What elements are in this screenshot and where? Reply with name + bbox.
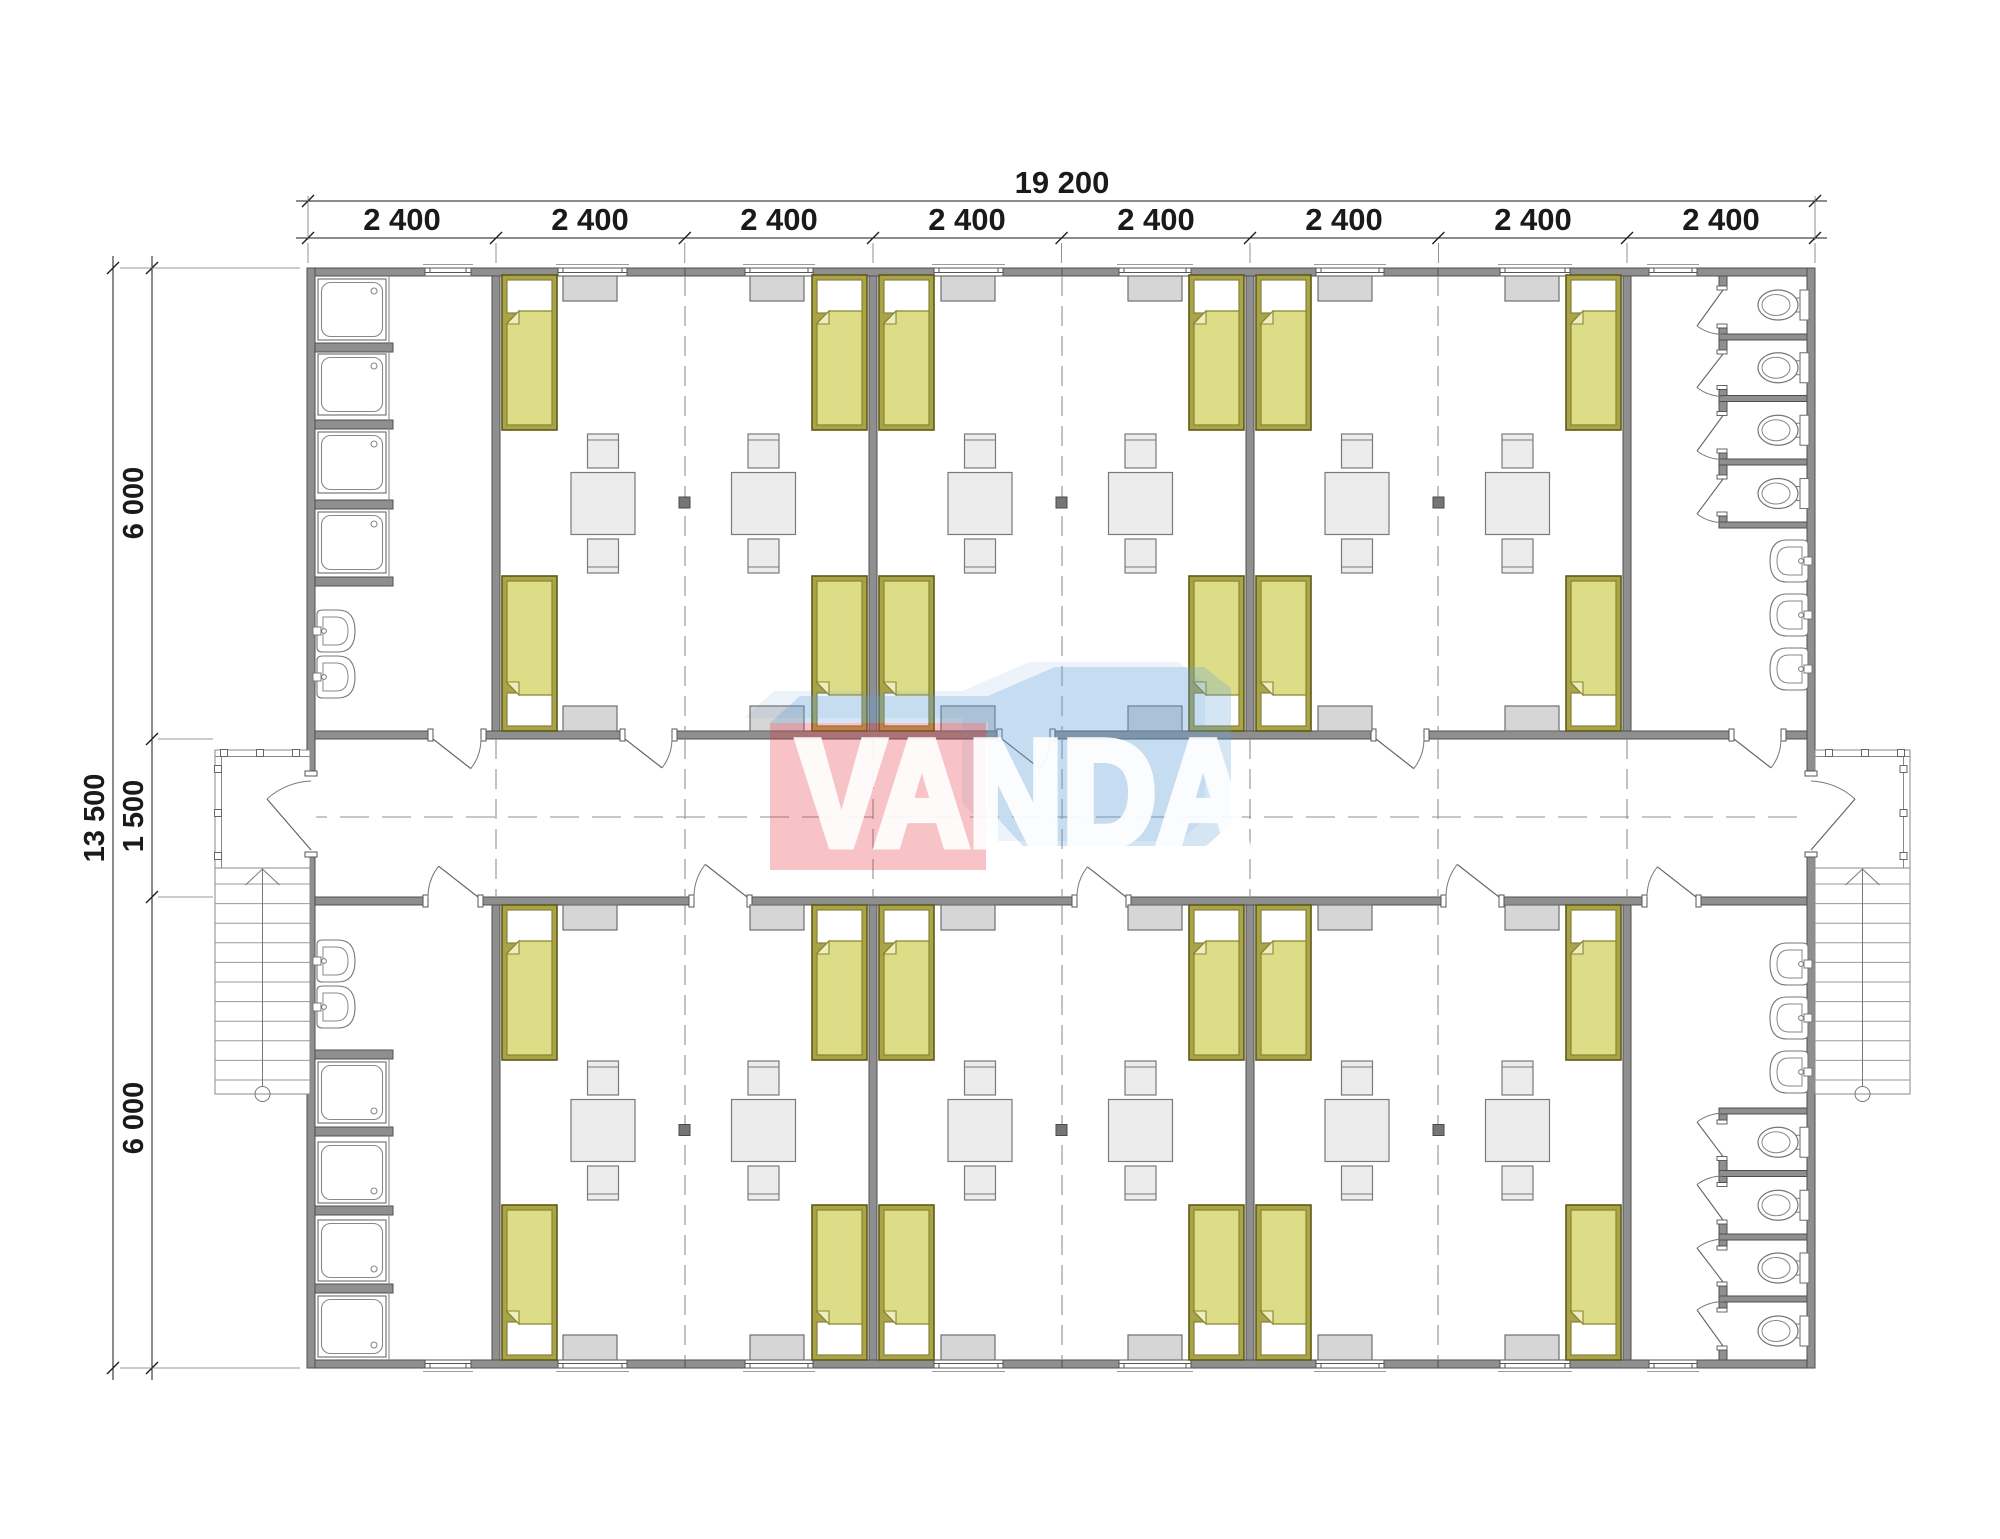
svg-text:2 400: 2 400 bbox=[1682, 202, 1760, 237]
svg-text:2 400: 2 400 bbox=[551, 202, 629, 237]
svg-text:13 500: 13 500 bbox=[79, 774, 111, 863]
svg-text:2 400: 2 400 bbox=[1494, 202, 1572, 237]
svg-text:2 400: 2 400 bbox=[740, 202, 818, 237]
svg-text:6 000: 6 000 bbox=[118, 467, 150, 540]
svg-text:2 400: 2 400 bbox=[1305, 202, 1383, 237]
svg-text:19 200: 19 200 bbox=[1015, 165, 1110, 200]
svg-text:1 500: 1 500 bbox=[118, 780, 150, 853]
svg-text:2 400: 2 400 bbox=[363, 202, 441, 237]
svg-text:VANDA: VANDA bbox=[798, 709, 1250, 877]
svg-text:2 400: 2 400 bbox=[928, 202, 1006, 237]
svg-text:2 400: 2 400 bbox=[1117, 202, 1195, 237]
svg-text:6 000: 6 000 bbox=[118, 1082, 150, 1155]
